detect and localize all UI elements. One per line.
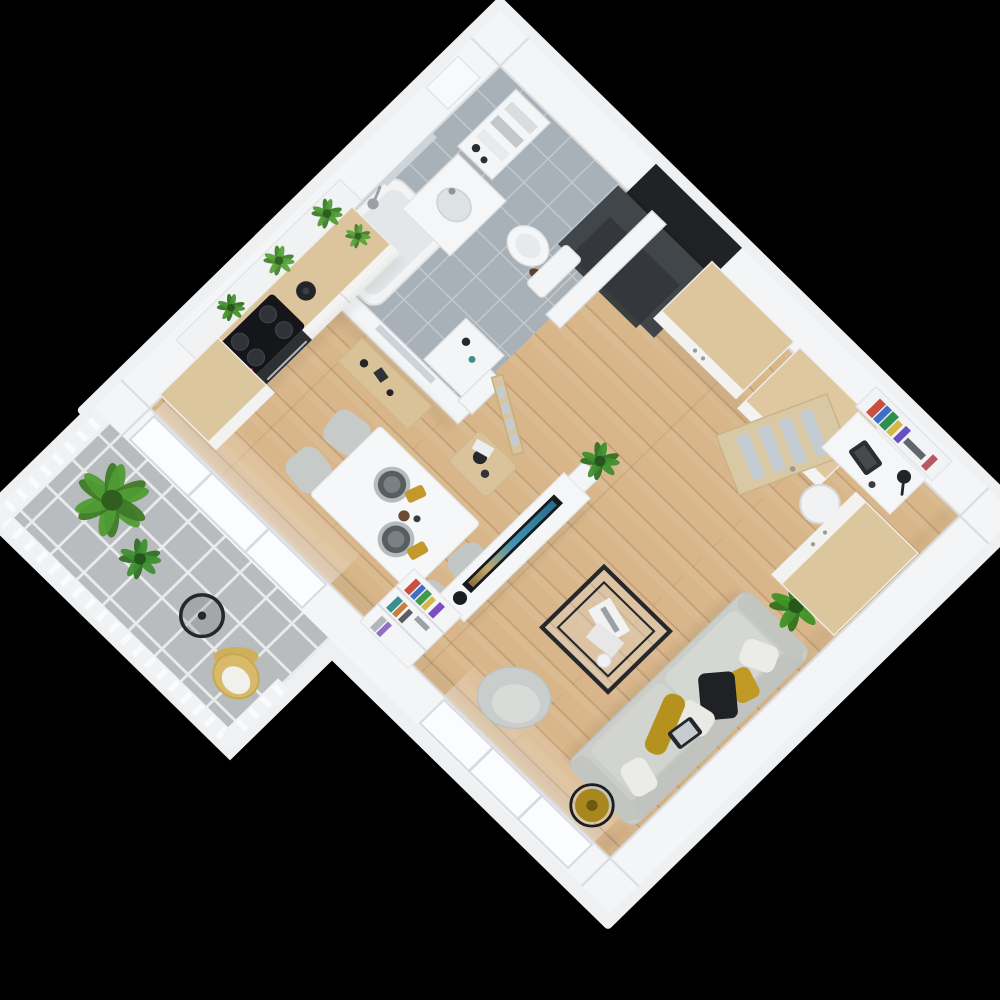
floor-plan-3d-render: [0, 0, 1000, 1000]
apartment-floorplan-stage: [0, 0, 1000, 1000]
